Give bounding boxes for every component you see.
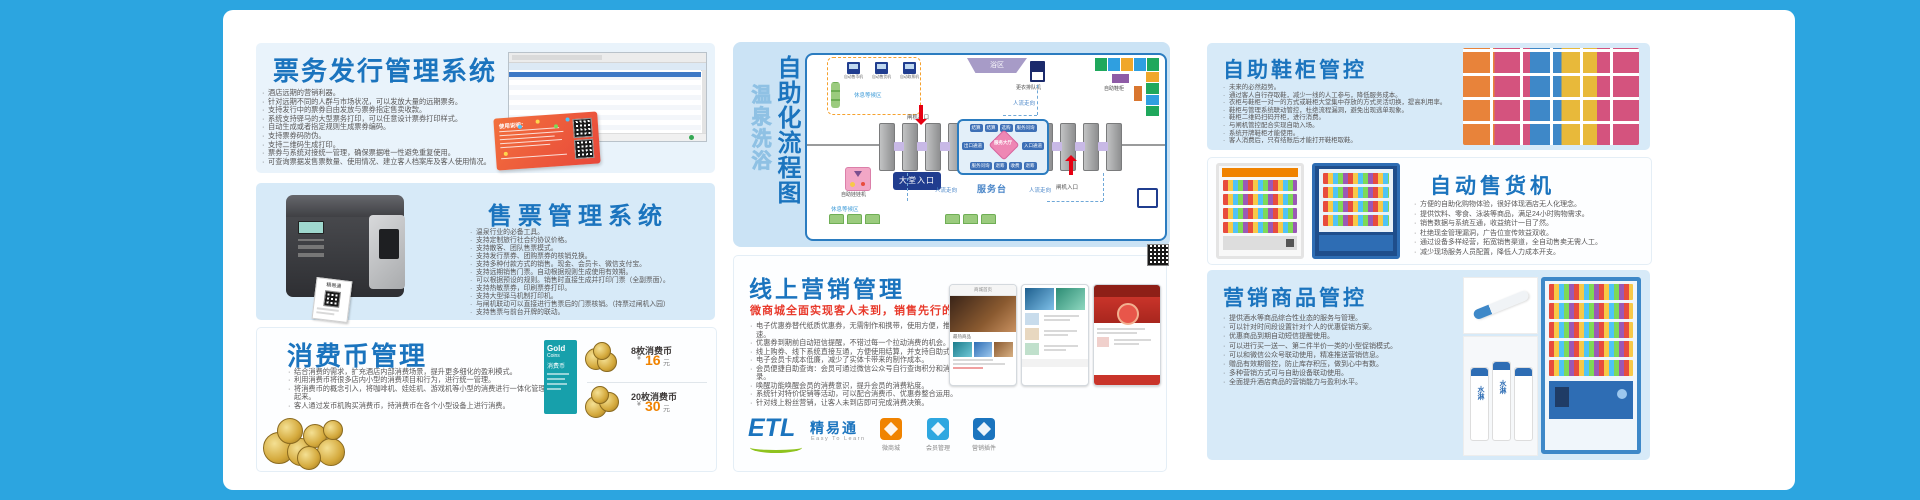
bottle-label: 水淋: [1497, 380, 1507, 394]
printer-lid: [286, 195, 404, 217]
shoe-locker-bank-top: [1095, 58, 1159, 71]
corridor-wall: [807, 144, 881, 146]
phone-footer: [1022, 359, 1088, 367]
bullet: 衣柜与鞋柜一对一的方式或鞋柜大堂集中存放的方式灵活切换，提高利用率。: [1223, 99, 1457, 107]
turnstile-gate: [940, 142, 950, 151]
bullet: 可以和微信公众号联动使用，精准推送营销信息。: [1223, 351, 1459, 360]
phone-mockup-list: [1021, 284, 1089, 386]
shoe-locker-bank-side: [1146, 72, 1159, 116]
bottle: 水淋: [1492, 361, 1511, 441]
ticket-line: [500, 144, 550, 148]
turnstile-pillar: [1106, 123, 1122, 171]
flow-panel: 温泉洗浴 自助化流程图: [733, 42, 1170, 247]
card-ticket-sale-bullets: 温泉行业的必备工具。支持定制旅行社合约协议价格。支持散客、团队售票模式。支持发行…: [470, 229, 710, 317]
coin-price-row: 20枚消费币 ¥ 30 元: [585, 388, 713, 422]
bullet: 全面提升酒店商品的营销能力与盈利水平。: [1223, 378, 1459, 387]
ticket-card: 使用说明：: [493, 111, 600, 170]
price-divider: [587, 382, 707, 383]
bullet: 支持远期销售门票。自动根据规则生成使用有效期。: [470, 269, 710, 277]
phone-mockup-promo: [1093, 284, 1161, 386]
vending-machines-photo: [1216, 163, 1406, 259]
phone-mockup-mall: 商城首页 最热商品: [949, 284, 1017, 386]
bullet: 方便的自助化购物体验，很好体现酒店无人化理念。: [1414, 200, 1642, 210]
service-hall-box: 结算结算选购服务问询 出口通道 入口通道 服务大厅 服务问询退筹收费退筹: [957, 119, 1049, 175]
map-label: 服务问询: [970, 162, 992, 170]
queue-machine-icon: [1030, 61, 1045, 82]
coin-price-value: 16: [645, 352, 661, 368]
printer-window: [379, 229, 399, 259]
map-label: 服务问询: [1015, 124, 1037, 132]
vending-machine-icon: 自动取票机: [900, 62, 919, 80]
entry-arrow: [1069, 161, 1073, 175]
gold-card-name: 消费币: [547, 361, 577, 370]
exit-arrow: [919, 105, 923, 119]
exit-lane-label: 出口通道: [962, 142, 984, 150]
label-printer-photo: 精易通: [286, 195, 411, 307]
bullet: 支持发行票券、团购票券的核销兑换。: [470, 253, 710, 261]
spa-photo: [950, 296, 1016, 332]
rest-area-box: 自动售币机 自动售货机 自动取票机: [827, 57, 921, 115]
card-vending-bullets: 方便的自助化购物体验，很好体现酒店无人化理念。提供饮料、零食、泳装等商品，满足2…: [1414, 200, 1642, 258]
map-label: 结算: [985, 124, 998, 132]
card-marketing-subtitle: 微商城全面实现客人未到，销售先行的理念: [750, 302, 978, 318]
card-ticket-sale: 精易通 售票管理系统 温泉行业的必备工具。支持定制旅行社合约协议价格。支持散客、…: [256, 183, 715, 320]
flow-path: [907, 173, 908, 201]
turnstile-pillar: [1060, 123, 1076, 171]
etl-logo-swoosh: [750, 442, 802, 453]
claw-machine-icon: [845, 167, 871, 191]
facility-map: 自动售币机 自动售货机 自动取票机: [805, 53, 1167, 241]
bullet: 支持售票与前台开牌的联动。: [470, 309, 710, 317]
etl-logo: ETL 精易通 Easy To Learn: [748, 412, 898, 460]
service-row-bottom: 服务问询退筹收费退筹: [959, 162, 1047, 170]
printer-label-qr: [323, 290, 341, 308]
bullet: 未来的必然趋势。: [1223, 84, 1457, 92]
coins-photo: [259, 394, 359, 468]
bullet: 与闸机联动可以直接进行售票后的门票核销。（持票过闸机入园）: [470, 301, 710, 309]
bottle-label: 水淋: [1475, 386, 1485, 400]
list-row: [1025, 343, 1085, 355]
gold-card-word2: Coins: [547, 353, 577, 359]
bullet: 针对线上粉丝营销，让客人未到店即可完成消费决策。: [750, 399, 972, 408]
lobby-entrance: 大堂入口: [893, 172, 941, 190]
bullet: 可以针对时间段设置针对个人的优惠促销方案。: [1223, 323, 1459, 332]
service-desk-label: 服务台: [977, 182, 1007, 195]
bullet: 支持定制旅行社合约协议价格。: [470, 237, 710, 245]
status-green-dot: [689, 135, 694, 140]
card-merch-title: 营销商品管控: [1223, 282, 1367, 312]
bullet: 多种营销方式可与自助设备联动使用。: [1223, 369, 1459, 378]
flow-direction-label: 人流走向: [1013, 99, 1035, 107]
bullet: 优惠商品到期自动短信提醒使用。: [1223, 332, 1459, 341]
bath-area: 浴区: [967, 58, 1027, 73]
card-ticket-sale-title: 售票管理系统: [488, 196, 668, 231]
app-icon-group: 营销插件: [972, 418, 996, 452]
card-shoe-bullets: 未来的必然趋势。通过客人自行存取鞋，减少一线的人工参与，降低服务成本。衣柜与鞋柜…: [1223, 84, 1457, 145]
flow-path: [1037, 85, 1038, 115]
vending-machine-left: [1216, 163, 1304, 259]
printer-label-output: 精易通: [312, 277, 353, 323]
phone-section-label: 最热商品: [953, 334, 1016, 340]
flow-title-vertical: 自助化流程图: [769, 55, 804, 205]
map-label: 退筹: [994, 162, 1007, 170]
shoe-counter-icon: [1112, 74, 1129, 83]
promo-button-bar[interactable]: [1094, 375, 1160, 385]
bottle: [1514, 367, 1533, 441]
app-icon-group: 会员管理: [926, 418, 950, 452]
currency-symbol: ¥: [637, 401, 641, 408]
shoe-cabinet-label: 自助鞋柜: [1104, 85, 1124, 92]
entry-door-icon: [1137, 188, 1158, 208]
bullet: 可查询票据发售票数量、使用情况、建立客人档案库及客人使用情况。: [262, 158, 512, 167]
content-band: 票务发行管理系统 酒店远期的营销利器。针对远期不同的人群与市场状况，可以发放大量…: [223, 10, 1795, 490]
bullet: 通过设备多样经营，拓宽销售渠道，全自动售卖无需人工。: [1414, 238, 1642, 248]
flow-path: [1103, 173, 1104, 201]
bullet: 支持散客、团队售票模式。: [470, 245, 710, 253]
app-label: 会员管理: [926, 443, 950, 452]
vending-machine-label: 自动售币机: [844, 75, 863, 80]
ticket-line: [501, 154, 567, 160]
gold-card-word1: Gold: [547, 344, 577, 353]
card-vending: 自动售货机 方便的自助化购物体验，很好体现酒店无人化理念。提供饮料、零食、泳装等…: [1207, 157, 1652, 265]
card-ticket-issue-bullets: 酒店远期的营销利器。针对远期不同的人群与市场状况，可以发放大量的远期票务。支持发…: [262, 89, 512, 166]
vending-machine-icon: 自动售货机: [872, 62, 891, 80]
list-row: [1025, 328, 1085, 340]
app-icon-group: 微商城: [880, 418, 902, 452]
member-app-icon: [927, 418, 949, 440]
printer-buttons[interactable]: [298, 239, 324, 257]
entry-lane-label: 入口通道: [1022, 142, 1044, 150]
card-marketing: 线上营销管理 微商城全面实现客人未到，销售先行的理念 电子优惠券替代纸质优惠券，…: [733, 255, 1167, 472]
vending-closeup-photo: [1541, 277, 1641, 454]
bullet: 会员便捷自助查询：会员可通过微信公众号自行查询积分和消费记录。: [750, 365, 972, 382]
card-merch: 营销商品管控 提供酒水等商品综合性业态的服务与管理。可以针对时间段设置针对个人的…: [1207, 270, 1650, 460]
promo-header: [1094, 285, 1160, 297]
bullet: 支持大型驿马机制打印机。: [470, 293, 710, 301]
bullet: 销售数据与系统互通，收益统计一目了然。: [1414, 219, 1642, 229]
product-thumbs: [953, 342, 1013, 357]
flow-path: [1047, 201, 1103, 202]
card-shoe: 自助鞋柜管控 未来的必然趋势。通过客人自行存取鞋，减少一线的人工参与，降低服务成…: [1207, 43, 1650, 150]
bullet: 支持热敏票券，印刷票券打印。: [470, 285, 710, 293]
turnstile-pillar: [1083, 123, 1099, 171]
bullet: 可以进行买一送一、第二件半价一类的小型促销模式。: [1223, 342, 1459, 351]
flow-path: [1003, 115, 1037, 116]
locker-block: [1134, 86, 1142, 101]
bullet: 与闸机管控配合实现自助入场。: [1223, 122, 1457, 130]
card-coin: 消费币管理 结合消费的需求，扩充酒店内部消费场景，提升更多细化的盈利模式。利用消…: [256, 327, 717, 472]
photo-row: [1025, 288, 1085, 310]
bullet: 提供酒水等商品综合性业态的服务与管理。: [1223, 314, 1459, 323]
card-ticket-issue-title: 票务发行管理系统: [273, 51, 497, 88]
bullet: 赠品有效期管控，防止库存积压，做到心中有数。: [1223, 360, 1459, 369]
bullet: 鞋柜二维码扫码开柜，进行消费。: [1223, 114, 1457, 122]
seat-row: [945, 214, 996, 224]
rest-area-bottom-label: 休息等候区: [831, 205, 859, 213]
ticket-qr-code: [574, 139, 594, 159]
app-label: 微商城: [880, 443, 902, 452]
bullet: 减少现场服务人员配置，降低人力成本开支。: [1414, 248, 1642, 258]
seat-row: [829, 214, 880, 224]
etl-logo-name: 精易通: [810, 418, 858, 438]
bottle: 水淋: [1470, 367, 1489, 441]
vending-machine-label: 自动取票机: [900, 75, 919, 80]
app-label: 营销插件: [972, 443, 996, 452]
turnstile-gate: [894, 142, 904, 151]
coin-price-unit: 元: [663, 358, 670, 368]
bullet: 支持多种付款方式的销售。现金、会员卡、微信支付宝。: [470, 261, 710, 269]
corridor-wall: [1120, 144, 1165, 146]
claw-machine-label: 自助娃娃机: [841, 191, 866, 198]
card-ticket-issue: 票务发行管理系统 酒店远期的营销利器。针对远期不同的人群与市场状况，可以发放大量…: [256, 43, 715, 173]
bullet: 可以根据预设的规则。销售时直接生成并打印门票（全副票面）。: [470, 277, 710, 285]
phone-header: 商城首页: [950, 285, 1016, 296]
vending-machine-right: [1312, 163, 1400, 259]
bullet: 提供饮料、零食、泳装等商品，满足24小时购物需求。: [1414, 210, 1642, 220]
coin-price-row: 8枚消费币 ¥ 16 元: [585, 342, 713, 376]
printer-screen: [298, 221, 324, 234]
card-marketing-title: 线上营销管理: [749, 270, 905, 304]
list-row: [1025, 313, 1085, 325]
screenshot-scrollbar[interactable]: [702, 70, 706, 133]
etl-logo-mark: ETL: [748, 414, 795, 443]
flow-direction-label: 人流走向: [935, 186, 957, 194]
gold-coins-card: Gold Coins 消费币: [544, 340, 577, 414]
bullet: 客人消费后，只有结账后才能打开鞋柜取鞋。: [1223, 137, 1457, 145]
coin-price-value: 30: [645, 398, 661, 414]
shoe-locker-photo: [1463, 48, 1639, 145]
map-label: 结算: [970, 124, 983, 132]
vending-machines-row: 自动售币机 自动售货机 自动取票机: [844, 62, 919, 80]
ticket-confetti: [504, 152, 508, 156]
card-merch-bullets: 提供酒水等商品综合性业态的服务与管理。可以针对时间段设置针对个人的优惠促销方案。…: [1223, 314, 1459, 388]
service-hall-label: 服务大厅: [989, 140, 1017, 146]
wechat-qr-code: [1147, 244, 1169, 266]
rest-area-label: 休息等候区: [854, 91, 882, 99]
ticket-qr-code: [573, 118, 593, 138]
screenshot-toolbar-buttons: [512, 55, 602, 60]
currency-symbol: ¥: [637, 355, 641, 362]
product-tube-photo: [1463, 277, 1538, 334]
marketing-app-icon: [973, 418, 995, 440]
map-label: 退筹: [1024, 162, 1037, 170]
bench-icon: [831, 82, 840, 108]
gate-entry-label: 闸机入口: [1056, 183, 1078, 191]
poster-page: 票务发行管理系统 酒店远期的营销利器。针对远期不同的人群与市场状况，可以发放大量…: [0, 0, 1920, 500]
screenshot-selected-row: [509, 72, 701, 77]
coin-price-unit: 元: [663, 404, 670, 414]
turnstile-pillar: [879, 123, 895, 171]
card-marketing-bullets: 电子优惠券替代纸质优惠券，无需制作和携带，使用方便，推广迅速。优惠券到期前自动短…: [750, 322, 972, 407]
vending-machine-label: 自动售货机: [872, 75, 891, 80]
bullet: 温泉行业的必备工具。: [470, 229, 710, 237]
promo-banner: [1094, 297, 1160, 323]
turnstile-pillar: [925, 123, 941, 171]
flow-direction-label: 人流走向: [1029, 186, 1051, 194]
etl-logo-tagline: Easy To Learn: [811, 436, 866, 442]
vending-machine-icon: 自动售币机: [844, 62, 863, 80]
mall-app-icon: [880, 418, 902, 440]
map-label: 收费: [1009, 162, 1022, 170]
printer-label-text: 精易通: [316, 280, 351, 291]
turnstile-gate: [1098, 142, 1108, 151]
bullet: 杜绝现金管理漏洞，广告位宣传效益双收。: [1414, 229, 1642, 239]
turnstile-gate: [1052, 142, 1062, 151]
bullet: 电子优惠券替代纸质优惠券，无需制作和携带，使用方便，推广迅速。: [750, 322, 972, 339]
turnstile-gate: [917, 142, 927, 151]
promo-row: [1097, 337, 1157, 347]
ticket-line: [500, 139, 562, 144]
card-shoe-title: 自助鞋柜管控: [1223, 54, 1367, 84]
bottles-photo: 水淋 水淋: [1463, 336, 1538, 456]
card-vending-title: 自动售货机: [1430, 170, 1555, 200]
